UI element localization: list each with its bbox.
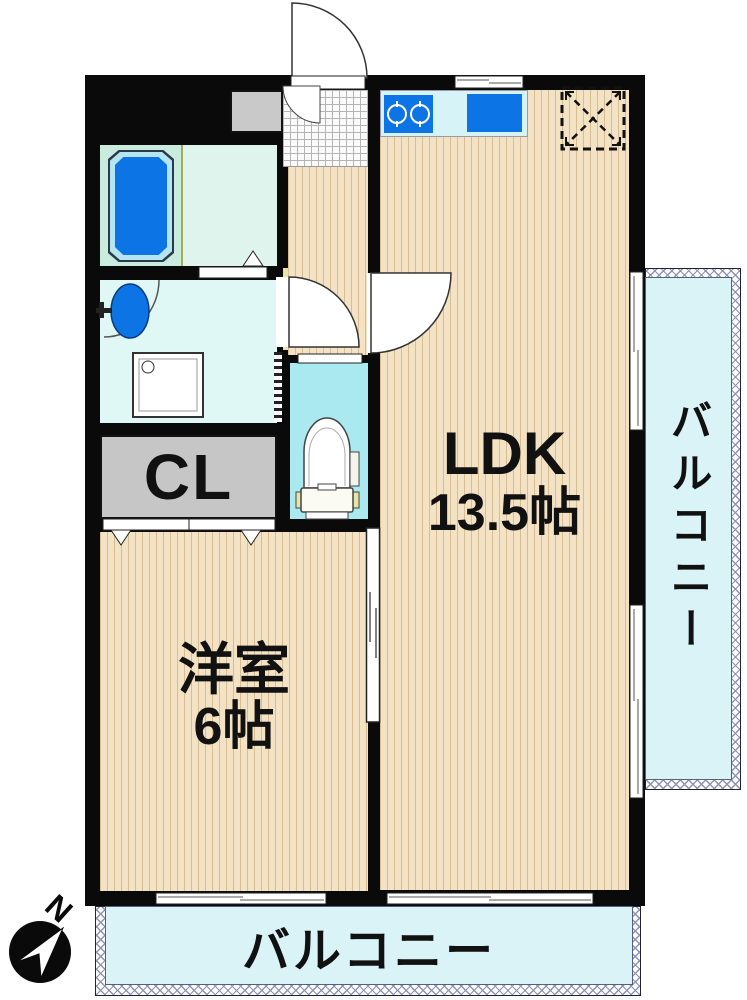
western-name: 洋室 bbox=[178, 641, 290, 698]
balcony-right-label: バルコニー bbox=[645, 278, 732, 780]
floor-plan: N LDK 13.5帖 洋室 6帖 CL バルコニー バルコニー bbox=[0, 0, 747, 1000]
wall-top bbox=[85, 75, 645, 91]
door-jamb-strip bbox=[283, 268, 288, 350]
compass-north-label: N bbox=[38, 887, 79, 929]
wall-mid-right bbox=[368, 90, 380, 520]
ldk-name: LDK bbox=[443, 423, 566, 484]
ldk-label: LDK 13.5帖 bbox=[380, 415, 629, 550]
shoe-cabinet bbox=[230, 90, 283, 133]
wall-right bbox=[629, 75, 645, 906]
wall-closet-bottom bbox=[100, 519, 380, 532]
western-size: 6帖 bbox=[194, 698, 275, 756]
stove-icon bbox=[384, 95, 433, 133]
hallway-floor bbox=[288, 167, 368, 355]
bathtub-icon bbox=[108, 150, 174, 262]
room-washroom bbox=[100, 280, 277, 423]
bathroom-divider bbox=[181, 145, 183, 266]
room-toilet bbox=[290, 363, 368, 519]
ldk-size: 13.5帖 bbox=[428, 485, 581, 542]
dotted-partition bbox=[274, 352, 282, 422]
closet-label: CL bbox=[100, 435, 277, 519]
wall-washroom-closet bbox=[100, 423, 277, 435]
wall-bath-bottom bbox=[100, 266, 277, 280]
compass-icon: N bbox=[9, 887, 80, 983]
genkan-entry-floor bbox=[283, 90, 368, 167]
western-room-label: 洋室 6帖 bbox=[100, 636, 368, 761]
balcony-bottom-label: バルコニー bbox=[105, 906, 633, 985]
wall-left bbox=[85, 75, 100, 906]
wall-bottom bbox=[85, 890, 645, 906]
wall-western-ldk bbox=[367, 519, 380, 891]
sink-icon bbox=[467, 94, 522, 132]
